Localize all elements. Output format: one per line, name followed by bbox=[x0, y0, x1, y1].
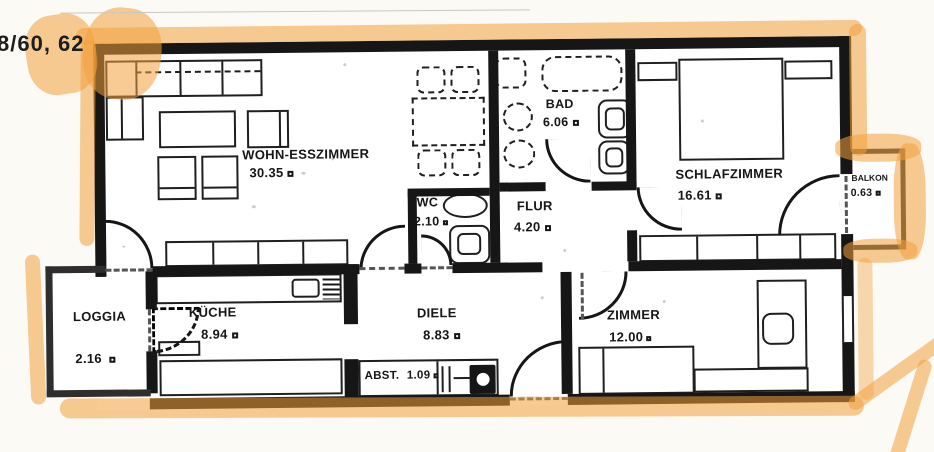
wall-kitchen-hall-lower bbox=[344, 359, 358, 397]
desk-chair bbox=[762, 313, 794, 345]
label-zimmer: ZIMMER bbox=[607, 308, 660, 322]
loggia-wall-bottom bbox=[47, 389, 151, 397]
zimmer-door-leaf bbox=[580, 273, 583, 320]
dining-chair bbox=[416, 66, 445, 93]
label-bad: BAD bbox=[546, 98, 574, 111]
area-loggia: 2.16 bbox=[75, 352, 115, 365]
threshold-wc bbox=[421, 266, 452, 269]
floor-plan-scan: WOHN-ESSZIMMER 30.35 BAD 6.06 SCHLAFZIMM… bbox=[0, 0, 934, 452]
sofa-divider bbox=[135, 62, 137, 95]
armchair bbox=[201, 155, 238, 199]
sqm-symbol bbox=[433, 373, 438, 378]
sofa-back-line bbox=[135, 70, 260, 73]
label-kueche: KÜCHE bbox=[189, 305, 237, 318]
highlighter-right-lower bbox=[857, 258, 873, 400]
balkon-wall-bottom bbox=[853, 244, 905, 250]
sqm-symbol bbox=[646, 336, 651, 341]
scan-speck bbox=[122, 246, 125, 248]
scan-speck bbox=[663, 300, 666, 303]
wall-bottom-right bbox=[568, 391, 855, 405]
loggia-wall-left bbox=[45, 266, 53, 396]
threshold-living bbox=[359, 267, 404, 270]
label-loggia: LOGGIA bbox=[73, 310, 126, 324]
armchair-line bbox=[160, 187, 195, 189]
area-balkon: 0.63 bbox=[851, 188, 881, 199]
corner-sofa bbox=[106, 96, 144, 140]
wall-hall-zimmer bbox=[560, 272, 572, 394]
wall-loggia-kitchen-upper bbox=[145, 271, 156, 309]
wc-toilet-bowl bbox=[457, 233, 481, 255]
meter-symbol bbox=[454, 377, 470, 379]
bed-pillow-line bbox=[602, 349, 604, 393]
area-diele: 8.83 bbox=[423, 328, 460, 341]
scan-speck bbox=[301, 172, 305, 175]
meter-symbol bbox=[448, 366, 450, 392]
sqm-symbol bbox=[572, 120, 578, 126]
single-bed bbox=[578, 346, 694, 395]
loggia-base bbox=[45, 265, 156, 397]
wall-loggia-kitchen-lower bbox=[146, 351, 157, 393]
sqm-symbol bbox=[875, 191, 880, 196]
wall-kitchen-hall-upper bbox=[343, 264, 358, 324]
scan-speck bbox=[541, 296, 544, 299]
kitchen-base-cabinet bbox=[159, 358, 342, 396]
area-schlafzimmer: 16.61 bbox=[678, 188, 722, 201]
wardrobe-divider bbox=[696, 237, 698, 260]
area-flur: 4.20 bbox=[514, 220, 551, 233]
side-table bbox=[247, 110, 289, 148]
label-diele: DIELE bbox=[417, 306, 457, 319]
area-kueche: 8.94 bbox=[201, 327, 238, 340]
scan-speck bbox=[252, 205, 256, 208]
washbasin bbox=[503, 139, 535, 168]
sideboard-divider bbox=[212, 243, 214, 265]
armchair-line bbox=[204, 186, 237, 188]
sqm-symbol bbox=[442, 220, 447, 225]
balkon-wall-right bbox=[900, 148, 906, 249]
sofa-divider bbox=[121, 99, 123, 139]
label-schlafzimmer: SCHLAFZIMMER bbox=[675, 167, 783, 181]
wall-bath-bedroom bbox=[625, 49, 636, 186]
meter-symbol bbox=[441, 366, 443, 392]
sqm-symbol bbox=[232, 332, 238, 338]
area-bad: 6.06 bbox=[543, 116, 579, 129]
sqm-symbol bbox=[287, 171, 293, 177]
sofa-divider bbox=[179, 62, 181, 95]
wardrobe-divider bbox=[756, 236, 758, 259]
sqm-symbol bbox=[545, 225, 551, 231]
wall-mid bbox=[404, 263, 421, 273]
threshold-balcony bbox=[844, 176, 848, 233]
sheet-annotation: 8/60, 62 bbox=[0, 31, 85, 57]
threshold-entrance bbox=[510, 397, 568, 401]
wall-flur-bedroom bbox=[627, 230, 637, 261]
sqm-symbol bbox=[454, 333, 460, 339]
area-zimmer: 12.00 bbox=[609, 330, 651, 343]
highlighter-cross-stroke bbox=[846, 317, 934, 413]
shaft-opening bbox=[477, 373, 490, 386]
apartment-plan: WOHN-ESSZIMMER 30.35 BAD 6.06 SCHLAFZIMM… bbox=[0, 0, 934, 452]
scan-speck bbox=[563, 249, 566, 252]
armchair bbox=[157, 156, 196, 200]
scan-speck bbox=[701, 120, 704, 123]
washbasin bbox=[503, 102, 533, 131]
highlighter-loggia-left bbox=[25, 254, 47, 405]
balkon-wall-top bbox=[852, 148, 904, 154]
dining-table bbox=[412, 97, 486, 147]
label-wohn-esszimmer: WOHN-ESSZIMMER bbox=[242, 147, 369, 161]
dining-chair bbox=[451, 149, 480, 176]
coffee-table bbox=[159, 110, 236, 148]
lowboard bbox=[694, 367, 809, 392]
sideboard-divider bbox=[257, 242, 259, 264]
balkon-base bbox=[852, 148, 906, 250]
side-table-divider bbox=[279, 112, 281, 146]
label-balkon: BALKON bbox=[851, 174, 887, 183]
nightstand bbox=[784, 60, 832, 80]
shower-tray bbox=[495, 57, 526, 88]
sqm-symbol bbox=[716, 193, 722, 199]
toilet-bowl bbox=[605, 107, 625, 130]
utility-shaft bbox=[469, 365, 495, 394]
sofa-divider bbox=[221, 62, 223, 95]
highlighter-cross-stroke bbox=[887, 358, 934, 452]
scan-speck bbox=[343, 63, 346, 66]
sideboard bbox=[165, 239, 348, 267]
sqm-symbol bbox=[109, 357, 115, 363]
area-wc: 2.10 bbox=[414, 215, 448, 228]
dining-chair bbox=[450, 66, 479, 93]
bidet-bowl bbox=[605, 147, 623, 167]
sideboard-divider bbox=[302, 242, 304, 264]
dining-chair bbox=[417, 149, 446, 176]
wardrobe bbox=[639, 233, 836, 262]
double-bed bbox=[678, 58, 784, 161]
bathtub bbox=[541, 55, 622, 92]
label-wc: WC bbox=[417, 196, 439, 209]
label-flur: FLUR bbox=[517, 199, 553, 212]
window-zimmer bbox=[842, 296, 854, 342]
stove bbox=[323, 278, 340, 299]
threshold-loggia bbox=[105, 268, 152, 271]
wall-mid bbox=[452, 262, 542, 273]
wall-right-upper bbox=[839, 36, 852, 174]
sofa-long bbox=[105, 59, 262, 98]
wardrobe-divider bbox=[799, 236, 801, 259]
area-wohn-esszimmer: 30.35 bbox=[249, 166, 293, 179]
kitchen-sink bbox=[292, 279, 320, 298]
label-abst: ABST. 1.09 bbox=[365, 370, 439, 382]
wc-toilet bbox=[449, 225, 490, 264]
wall-bath-bottom bbox=[500, 182, 546, 191]
threshold-kitchen bbox=[148, 309, 151, 351]
loggia-wall-top bbox=[45, 266, 105, 274]
wall-bottom-left bbox=[150, 395, 510, 410]
nightstand bbox=[637, 62, 677, 81]
